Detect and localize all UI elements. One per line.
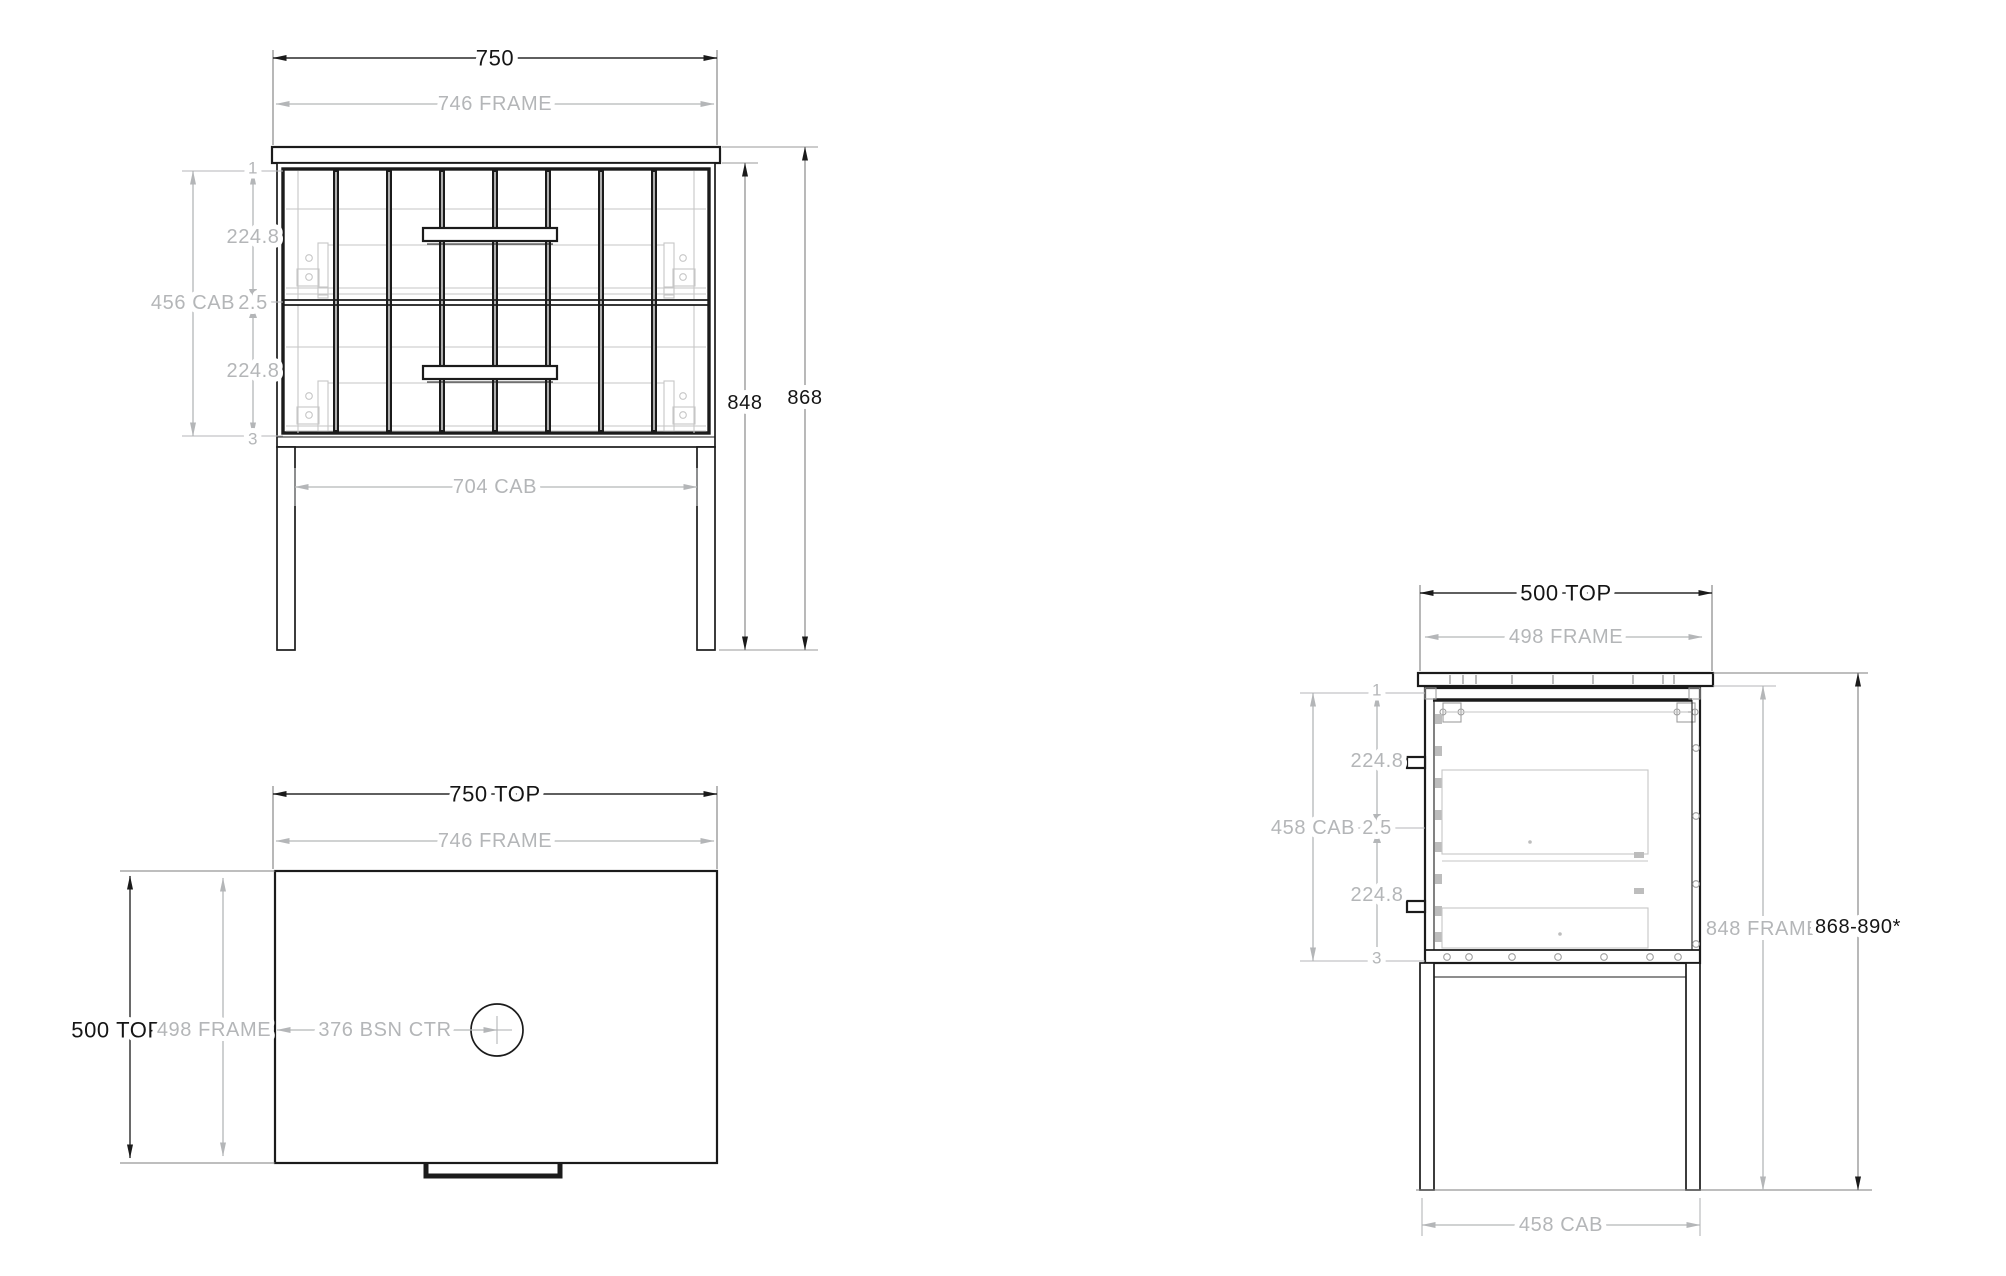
- front-dim-frame-height: 848: [727, 392, 762, 414]
- front-countertop: [272, 147, 720, 163]
- side-cabinet-box: [1425, 688, 1700, 963]
- side-dim-frame: 498 FRAME: [1509, 626, 1623, 648]
- front-drawer2-handle: [423, 366, 557, 382]
- front-chain-gap-bottom: 3: [248, 430, 258, 449]
- side-chain-drawer1: 224.8: [1350, 750, 1403, 772]
- front-cabinet-geometry: [272, 147, 720, 650]
- side-drawer1-handle: [1407, 757, 1425, 768]
- front-drawer1-handle: [423, 228, 557, 244]
- side-countertop: [1418, 673, 1713, 686]
- front-dim-frame: 746 FRAME: [438, 93, 552, 115]
- front-chain-drawer2: 224.8: [226, 360, 279, 382]
- front-chain-gap-top: 1: [248, 159, 258, 178]
- side-back-leg: [1686, 963, 1700, 1190]
- side-dim-overall-height: 868-890*: [1815, 916, 1901, 938]
- plan-dim-depth-frame: 498 FRAME: [157, 1019, 271, 1041]
- plan-dim-depth: 500 TOP: [71, 1018, 162, 1043]
- plan-view: 750 TOP 746 FRAME 500 TOP 498 FRAME 376 …: [71, 782, 717, 1177]
- front-right-leg: [697, 447, 715, 650]
- plan-wall-bracket: [426, 1164, 560, 1176]
- side-dim-cab-depth: 458 CAB: [1519, 1214, 1603, 1236]
- plan-dim-width: 750 TOP: [449, 782, 540, 807]
- front-chain-gap-mid: 2.5: [238, 292, 268, 314]
- front-chain-drawer1: 224.8: [226, 226, 279, 248]
- technical-drawing-page: 750 746 FRAME 456 CAB 1 224.8 2.5 224.8 …: [0, 0, 2006, 1276]
- front-dim-cab-height: 456 CAB: [151, 292, 235, 314]
- side-chain-gap-bottom: 3: [1372, 949, 1382, 968]
- side-chain-drawer2: 224.8: [1350, 884, 1403, 906]
- side-front-leg: [1420, 963, 1434, 1190]
- side-dim-frame-height: 848 FRAME: [1706, 918, 1820, 940]
- side-chain-gap-top: 1: [1372, 681, 1382, 700]
- front-dim-cab-width: 704 CAB: [453, 476, 537, 498]
- plan-dim-frame: 746 FRAME: [438, 830, 552, 852]
- side-dim-cab-height: 458 CAB: [1271, 817, 1355, 839]
- vanity-drawing-canvas: 750 746 FRAME 456 CAB 1 224.8 2.5 224.8 …: [0, 0, 2006, 1276]
- front-dim-width: 750: [476, 46, 515, 71]
- side-section-view: 500 TOP 498 FRAME 458 CAB 1 224.8 2.5 22…: [1271, 581, 1901, 1237]
- side-drawer2-handle: [1407, 901, 1425, 912]
- front-dim-overall-height: 868: [787, 387, 822, 409]
- front-elevation-view: 750 746 FRAME 456 CAB 1 224.8 2.5 224.8 …: [151, 46, 823, 651]
- front-left-leg: [277, 447, 295, 650]
- plan-dim-basin-center: 376 BSN CTR: [318, 1019, 451, 1041]
- side-chain-gap-mid: 2.5: [1362, 817, 1392, 839]
- side-dim-depth: 500 TOP: [1520, 581, 1611, 606]
